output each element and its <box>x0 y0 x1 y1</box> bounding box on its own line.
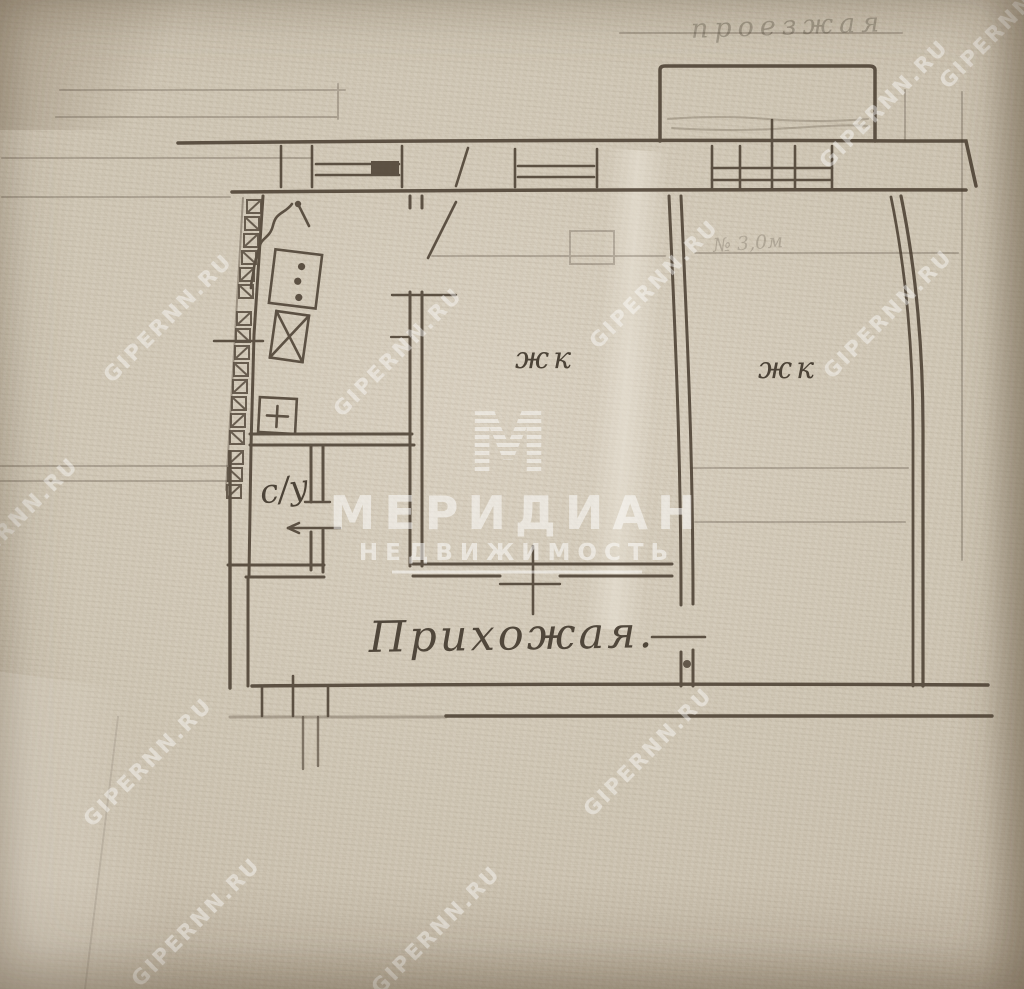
room-label-hallway: Прихожая. <box>368 612 655 660</box>
room-label-living-2: жк <box>758 354 818 384</box>
scanned-floorplan-page: проезжая № 3,0м жк жк с/у Прихожая. М МЕ… <box>0 0 1024 989</box>
room-label-living-1: жк <box>515 344 575 374</box>
dimension-note: № 3,0м <box>712 232 783 256</box>
room-label-bathroom: с/у <box>258 469 311 508</box>
street-side-note: проезжая <box>690 9 885 43</box>
meridian-logo-icon: М <box>467 403 549 485</box>
watermark-brand-name: МЕРИДИАН <box>330 486 705 540</box>
watermark-brand-subtitle: НЕДВИЖИМОСТЬ <box>359 540 675 566</box>
watermark-underline <box>392 571 642 574</box>
